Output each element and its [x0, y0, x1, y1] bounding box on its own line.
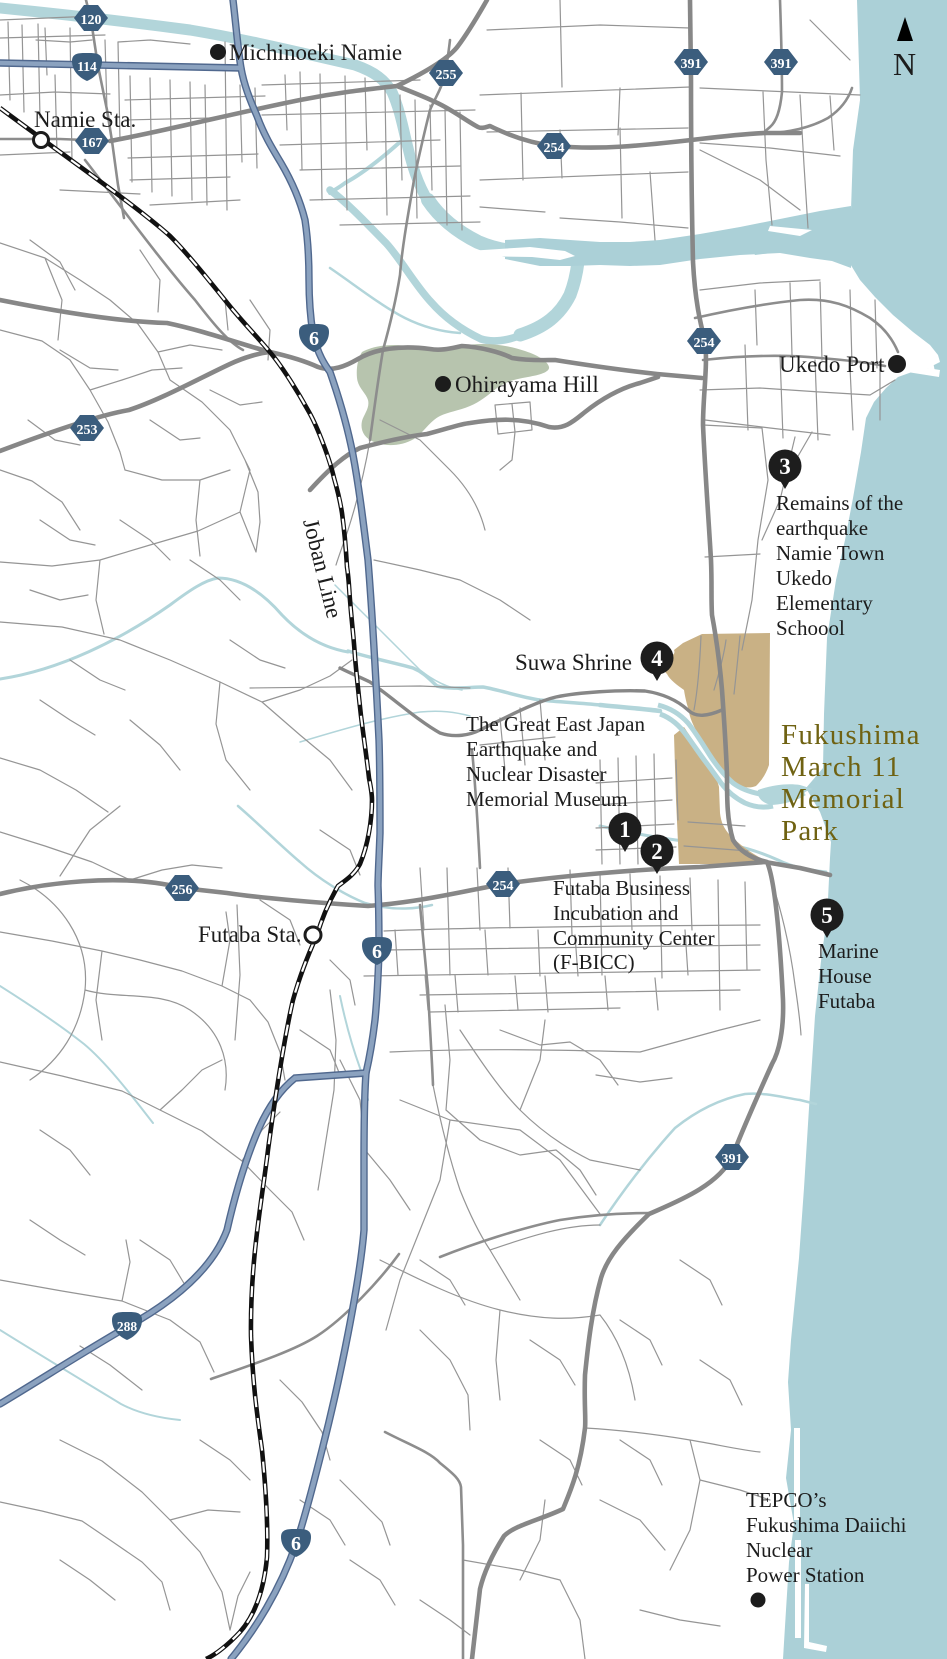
svg-text:254: 254 — [694, 336, 715, 351]
svg-text:Remains of the: Remains of the — [776, 491, 903, 515]
svg-text:254: 254 — [544, 141, 565, 156]
svg-text:253: 253 — [77, 423, 98, 438]
svg-text:Futaba Sta.: Futaba Sta. — [198, 922, 302, 947]
svg-text:1: 1 — [619, 817, 631, 842]
svg-text:6: 6 — [309, 328, 319, 350]
svg-text:House: House — [818, 964, 872, 988]
svg-text:TEPCO’s: TEPCO’s — [746, 1488, 827, 1512]
svg-text:Nuclear Disaster: Nuclear Disaster — [466, 762, 607, 786]
svg-text:114: 114 — [77, 59, 97, 74]
svg-text:Ukedo: Ukedo — [776, 566, 832, 590]
svg-text:167: 167 — [82, 136, 103, 151]
svg-text:Futaba Business: Futaba Business — [553, 876, 690, 900]
svg-text:Marine: Marine — [818, 939, 879, 963]
svg-text:Community Center: Community Center — [553, 926, 715, 950]
svg-text:254: 254 — [493, 879, 514, 894]
svg-text:Nuclear: Nuclear — [746, 1538, 812, 1562]
svg-text:Fukushima: Fukushima — [781, 719, 921, 751]
svg-text:Power Station: Power Station — [746, 1563, 865, 1587]
svg-text:6: 6 — [372, 941, 382, 963]
svg-text:The Great East Japan: The Great East Japan — [466, 712, 646, 736]
svg-text:391: 391 — [771, 57, 792, 72]
svg-text:Namie Sta.: Namie Sta. — [34, 107, 136, 132]
svg-text:3: 3 — [779, 454, 791, 479]
svg-text:255: 255 — [436, 68, 457, 83]
svg-text:Namie Town: Namie Town — [776, 541, 885, 565]
svg-text:N: N — [893, 46, 916, 82]
svg-text:4: 4 — [651, 646, 663, 671]
svg-text:Memorial: Memorial — [781, 783, 905, 815]
svg-text:Suwa Shrine: Suwa Shrine — [515, 650, 632, 675]
svg-text:earthquake: earthquake — [776, 516, 868, 540]
svg-text:Elementary: Elementary — [776, 591, 873, 615]
svg-text:Schoool: Schoool — [776, 616, 845, 640]
svg-text:Futaba: Futaba — [818, 989, 876, 1013]
svg-text:256: 256 — [172, 883, 193, 898]
svg-text:2: 2 — [651, 839, 663, 864]
svg-text:March 11: March 11 — [781, 751, 901, 783]
svg-text:6: 6 — [291, 1533, 301, 1555]
svg-text:Ukedo Port: Ukedo Port — [779, 352, 885, 377]
svg-text:391: 391 — [681, 57, 702, 72]
svg-text:120: 120 — [81, 13, 102, 28]
svg-text:Incubation and: Incubation and — [553, 901, 679, 925]
svg-text:391: 391 — [722, 1152, 743, 1167]
svg-text:(F-BICC): (F-BICC) — [553, 950, 635, 974]
svg-text:288: 288 — [117, 1319, 138, 1334]
svg-text:Memorial Museum: Memorial Museum — [466, 787, 628, 811]
svg-text:Earthquake and: Earthquake and — [466, 737, 598, 761]
svg-text:Ohirayama Hill: Ohirayama Hill — [455, 372, 599, 397]
svg-text:Fukushima Daiichi: Fukushima Daiichi — [746, 1513, 907, 1537]
svg-text:5: 5 — [821, 903, 833, 928]
svg-text:Michinoeki Namie: Michinoeki Namie — [229, 40, 402, 65]
svg-text:Park: Park — [781, 815, 839, 847]
